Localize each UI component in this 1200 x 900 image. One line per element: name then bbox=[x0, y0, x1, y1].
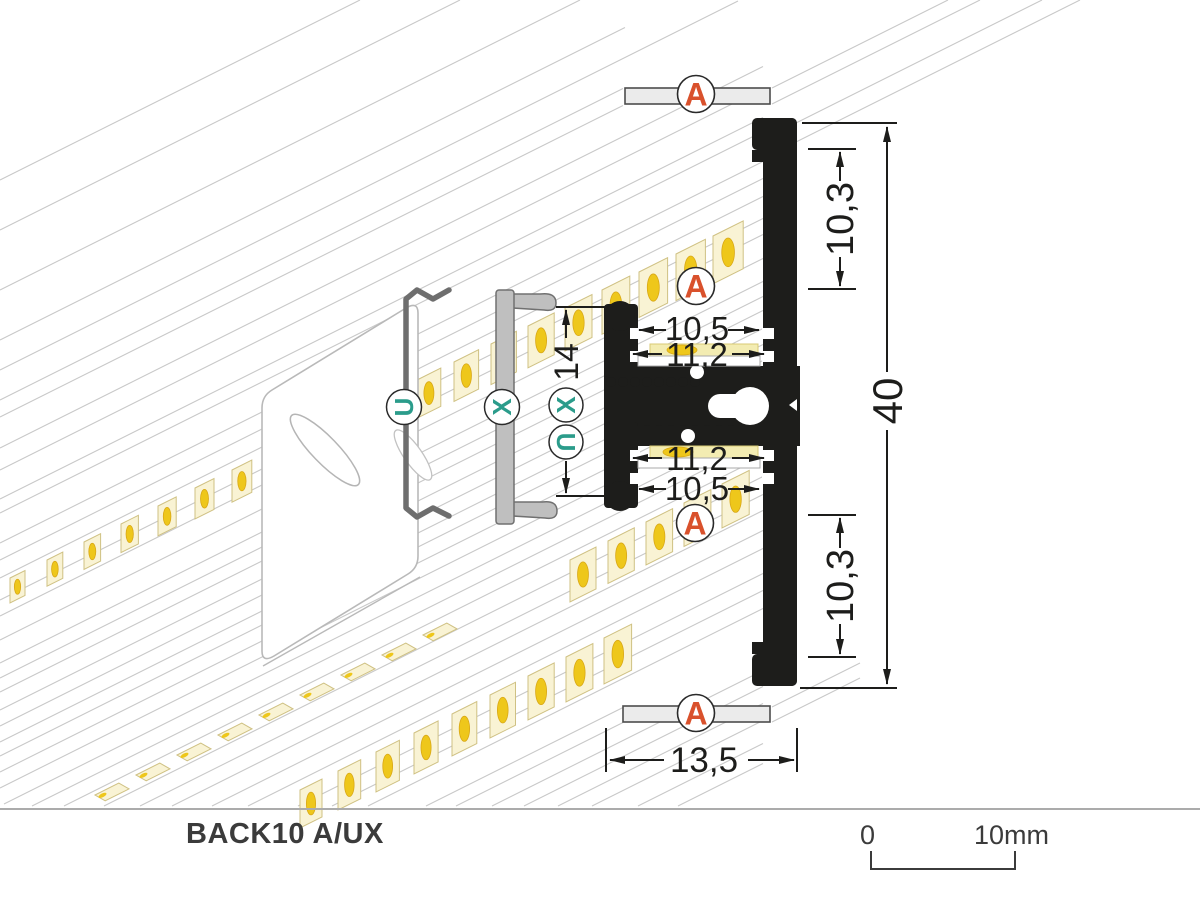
led-chip-flat bbox=[341, 663, 375, 681]
scale-zero-label: 0 bbox=[860, 820, 875, 851]
led-chip-die bbox=[574, 659, 585, 686]
led-chip-die bbox=[14, 579, 20, 594]
iso-line bbox=[0, 28, 625, 341]
upper-channel-bulge bbox=[605, 301, 635, 331]
profile-bottom-hook bbox=[752, 654, 797, 686]
profile-model-title: BACK10 A/UX bbox=[186, 818, 384, 851]
profile-top-hook bbox=[752, 118, 797, 150]
iso-line bbox=[772, 0, 948, 88]
iso-line bbox=[0, 0, 360, 180]
iso-line bbox=[772, 0, 980, 104]
screw-port-neck bbox=[708, 394, 754, 418]
lower-right-tooth-notch-1 bbox=[762, 450, 774, 461]
dim-upper-flange: 10,3 bbox=[820, 182, 862, 256]
led-chip-die bbox=[536, 328, 547, 353]
footer-separator-line bbox=[0, 808, 1200, 810]
profile-bottom-lip bbox=[752, 642, 764, 654]
led-chip-die bbox=[421, 735, 431, 760]
marker-u-iso: U bbox=[389, 398, 419, 417]
led-chip-flat bbox=[95, 783, 129, 801]
mounting-plate bbox=[262, 305, 420, 666]
scale-bar bbox=[870, 851, 1016, 870]
marker-u-section: U bbox=[551, 433, 581, 452]
marker-x-iso: X bbox=[487, 398, 517, 416]
marker-x-section: X bbox=[551, 396, 581, 414]
led-chip-die bbox=[647, 274, 659, 301]
upper-right-tooth-notch-2 bbox=[762, 351, 774, 362]
marker-a-top: A bbox=[684, 77, 707, 113]
led-chip-die bbox=[459, 716, 469, 741]
led-chip-die bbox=[126, 525, 133, 542]
led-chip-flat bbox=[218, 723, 252, 741]
led-chip-die bbox=[345, 773, 355, 796]
bracket-hook-bottom bbox=[513, 502, 557, 519]
led-chip-die bbox=[612, 640, 624, 668]
upper-right-tooth-notch-1 bbox=[762, 328, 774, 339]
led-chip-die bbox=[536, 678, 547, 704]
dim-bottom-width: 13,5 bbox=[670, 741, 738, 780]
upper-left-tooth-notch-1 bbox=[630, 328, 640, 339]
led-chip-die bbox=[497, 697, 508, 723]
iso-line bbox=[456, 723, 623, 807]
led-chip-die bbox=[201, 489, 209, 508]
marker-a-upper: A bbox=[684, 269, 707, 305]
dim-bracket-depth: 14 bbox=[548, 343, 586, 381]
iso-line bbox=[0, 0, 580, 290]
led-chip-die bbox=[573, 310, 584, 336]
led-chip-die bbox=[654, 524, 665, 550]
dim-upper-slot-width: 11,2 bbox=[666, 336, 728, 373]
technical-drawing-page: 10,3 10,3 40 14 10,5 11,2 11,2 10,5 13,5… bbox=[0, 0, 1200, 900]
profile-top-lip bbox=[752, 150, 764, 162]
iso-line bbox=[0, 0, 460, 230]
led-chip-die bbox=[163, 507, 171, 525]
marker-a-bottom: A bbox=[684, 696, 707, 732]
led-chip-flat bbox=[177, 743, 211, 761]
scale-ten-label: 10mm bbox=[974, 820, 1049, 851]
led-chip-die bbox=[722, 238, 735, 267]
led-chip-die bbox=[52, 561, 59, 577]
dim-lower-slot-opening: 10,5 bbox=[665, 470, 729, 507]
led-chip-die bbox=[578, 562, 589, 587]
marker-a-lower: A bbox=[683, 506, 706, 542]
profile-cross-section bbox=[604, 118, 800, 686]
led-chip-die bbox=[238, 471, 246, 490]
bracket-hook-top bbox=[513, 294, 556, 311]
dim-total-height: 40 bbox=[864, 378, 911, 425]
led-chip-die bbox=[89, 543, 96, 559]
dim-lower-flange: 10,3 bbox=[820, 549, 862, 623]
led-chip-die bbox=[424, 382, 434, 405]
led-chip-die bbox=[616, 543, 627, 569]
lower-right-tooth-notch-2 bbox=[762, 473, 774, 484]
led-chip-die bbox=[306, 792, 315, 815]
iso-line bbox=[797, 0, 1042, 123]
led-chip-die bbox=[461, 364, 471, 388]
led-chip-die bbox=[383, 754, 393, 778]
plate-face bbox=[262, 305, 418, 658]
led-chip-flat bbox=[136, 763, 170, 781]
profile-drawing: 10,3 10,3 40 14 10,5 11,2 11,2 10,5 13,5… bbox=[0, 0, 1200, 900]
lower-left-tooth-notch-2 bbox=[630, 473, 640, 484]
